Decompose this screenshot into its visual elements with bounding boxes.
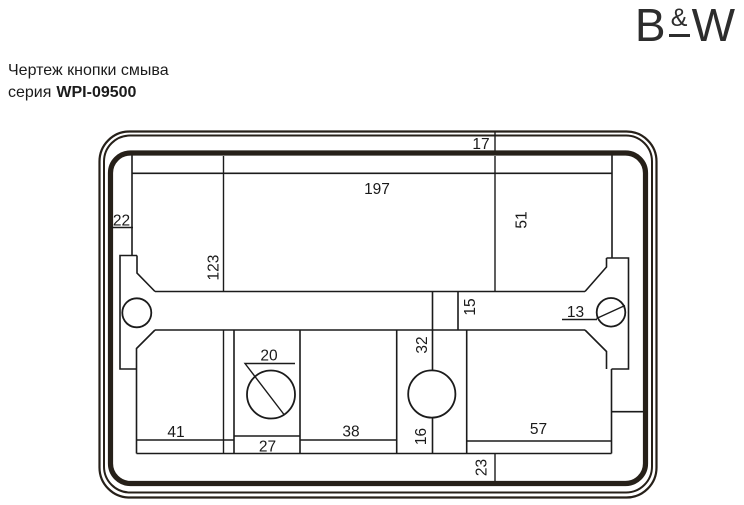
dim-inner-width: 197 xyxy=(364,181,390,198)
dim-button-hole: 20 xyxy=(260,348,278,365)
dim-seg-center: 27 xyxy=(259,439,276,456)
top-and-bottom-edges xyxy=(132,173,612,453)
dim-button-offset: 32 xyxy=(414,336,431,353)
page: Чертеж кнопки смыва серияWPI-09500 B & W xyxy=(0,0,744,505)
right-edge-and-ear xyxy=(585,156,644,454)
dim-rim-left: 22 xyxy=(113,213,130,230)
technical-drawing: 17 197 22 51 123 15 13 20 32 41 27 38 16… xyxy=(0,0,744,505)
plate-contour xyxy=(120,156,644,454)
dim-inner-height: 123 xyxy=(206,255,223,281)
frame-thick-wall xyxy=(111,153,646,484)
dim-screw-hole: 13 xyxy=(567,304,584,321)
dim-seg-right: 57 xyxy=(530,421,547,438)
dimension-labels: 17 197 22 51 123 15 13 20 32 41 27 38 16… xyxy=(113,136,584,476)
button-hole-right xyxy=(408,370,455,417)
dim-rim-top: 17 xyxy=(472,136,489,153)
dim-hole-bottom-gap: 16 xyxy=(413,428,430,445)
dim-rim-bottom: 23 xyxy=(474,459,491,476)
dim-seg-mid: 38 xyxy=(342,424,359,441)
dim-seg-left: 41 xyxy=(167,424,184,441)
dim-upper-height: 51 xyxy=(514,211,531,228)
button-hole-left xyxy=(247,371,295,419)
dim-crossbar-height: 15 xyxy=(462,298,479,315)
screw-hole-left xyxy=(122,298,151,327)
crossbar xyxy=(155,292,585,371)
